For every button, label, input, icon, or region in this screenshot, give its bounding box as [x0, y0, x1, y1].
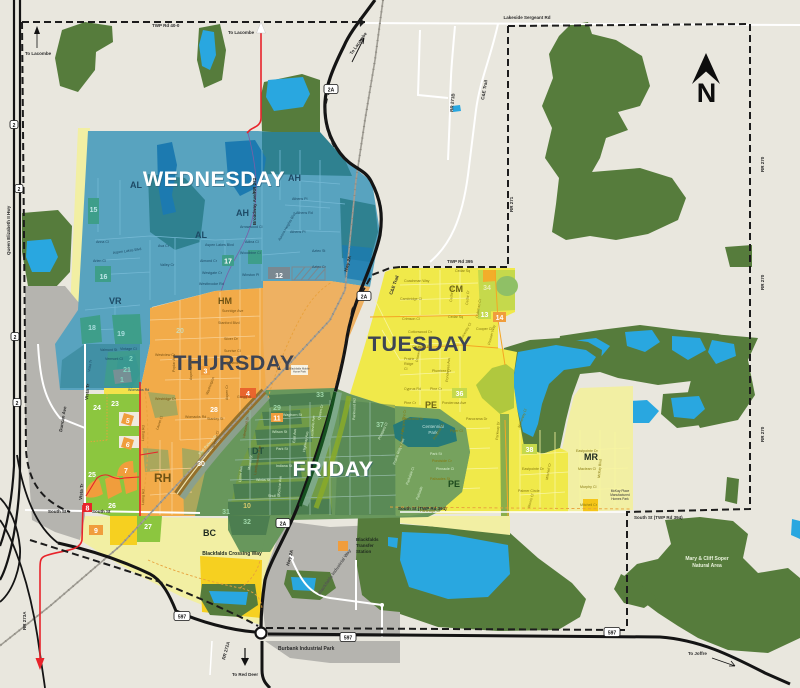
svg-text:Gregg St: Gregg St: [237, 395, 251, 399]
svg-text:RR 271: RR 271: [509, 196, 514, 212]
svg-text:Ridge: Ridge: [404, 362, 413, 366]
svg-text:Stanford Blvd: Stanford Blvd: [218, 321, 240, 325]
svg-text:21: 21: [123, 367, 131, 374]
svg-text:Natural Area: Natural Area: [692, 563, 722, 569]
svg-text:597: 597: [608, 631, 617, 637]
svg-text:Cyprus Rd: Cyprus Rd: [404, 387, 421, 391]
svg-text:2: 2: [129, 356, 133, 363]
svg-text:8: 8: [86, 506, 90, 513]
svg-text:24: 24: [93, 405, 101, 412]
svg-text:HM: HM: [218, 296, 232, 306]
svg-text:Mitchell Cr: Mitchell Cr: [580, 503, 598, 507]
svg-text:Westridge Dr: Westridge Dr: [155, 397, 177, 401]
svg-text:34: 34: [483, 285, 491, 292]
svg-text:Crimson Cl: Crimson Cl: [402, 317, 420, 321]
svg-text:28: 28: [210, 407, 218, 414]
svg-text:AL: AL: [195, 230, 207, 240]
svg-text:AL: AL: [130, 180, 142, 190]
svg-text:Valley Cr: Valley Cr: [160, 263, 175, 267]
svg-text:Adina Cl: Adina Cl: [245, 240, 259, 244]
svg-text:Athens Rd: Athens Rd: [296, 211, 313, 215]
svg-text:Westview Cr: Westview Cr: [226, 361, 247, 365]
svg-text:PE: PE: [425, 400, 437, 410]
svg-text:Pine Cr: Pine Cr: [404, 401, 417, 405]
svg-text:Athens Pl: Athens Pl: [292, 197, 308, 201]
svg-text:Transfer: Transfer: [356, 543, 374, 548]
svg-text:Murphy Cl: Murphy Cl: [580, 485, 597, 489]
svg-text:To Lacombe: To Lacombe: [25, 51, 52, 56]
svg-text:Arlen Cl: Arlen Cl: [93, 259, 106, 263]
svg-text:1: 1: [120, 377, 124, 384]
svg-text:Winston Pl: Winston Pl: [242, 273, 259, 277]
svg-text:597: 597: [344, 636, 353, 642]
svg-text:Waghorn St: Waghorn St: [283, 413, 302, 417]
svg-text:TWP Rd 40-0: TWP Rd 40-0: [152, 23, 180, 28]
svg-text:2: 2: [18, 187, 21, 193]
svg-text:Woodbine Cl: Woodbine Cl: [240, 251, 261, 255]
svg-text:Arrowwood Cl: Arrowwood Cl: [240, 225, 263, 229]
svg-text:South St: South St: [92, 509, 111, 514]
svg-text:Blackfalds: Blackfalds: [356, 537, 379, 542]
svg-text:Almond Cr: Almond Cr: [200, 259, 218, 263]
svg-text:Silver Dr: Silver Dr: [224, 337, 239, 341]
svg-text:RH: RH: [154, 471, 171, 485]
svg-text:Aztec Cr: Aztec Cr: [312, 265, 327, 269]
svg-text:11: 11: [273, 416, 281, 423]
svg-text:Anna Cl: Anna Cl: [96, 240, 109, 244]
svg-text:Womacks Rd: Womacks Rd: [128, 388, 149, 392]
svg-text:16: 16: [100, 274, 108, 281]
svg-text:Winks St: Winks St: [256, 478, 270, 482]
svg-text:RR 270: RR 270: [760, 156, 765, 172]
svg-text:Homes Park: Homes Park: [611, 497, 629, 501]
svg-text:Piper Cl: Piper Cl: [450, 429, 463, 433]
svg-text:Indiana St: Indiana St: [276, 464, 292, 468]
svg-text:25: 25: [88, 472, 96, 479]
svg-text:RR 270: RR 270: [760, 274, 765, 290]
svg-text:Cottonwood Dr: Cottonwood Dr: [408, 330, 433, 334]
svg-text:13: 13: [481, 312, 489, 319]
svg-text:Burbank Industrial Park: Burbank Industrial Park: [278, 646, 335, 652]
svg-text:23: 23: [111, 401, 119, 408]
svg-text:RR 273A: RR 273A: [22, 611, 27, 630]
svg-text:Pine Cr: Pine Cr: [430, 387, 443, 391]
svg-text:Poplar Ave: Poplar Ave: [172, 355, 176, 372]
svg-text:Blackfalds Crossing Way: Blackfalds Crossing Way: [202, 551, 262, 557]
svg-text:TWP Rd 395: TWP Rd 395: [447, 259, 473, 264]
svg-text:Station: Station: [356, 549, 372, 554]
svg-text:33: 33: [316, 392, 324, 399]
svg-text:Prairie: Prairie: [404, 357, 414, 361]
svg-text:Park St: Park St: [430, 452, 442, 456]
svg-text:Palmer Circle: Palmer Circle: [518, 489, 540, 493]
svg-text:Eastpointe Dr: Eastpointe Dr: [522, 467, 545, 471]
svg-text:Queen Elizabeth II Hwy: Queen Elizabeth II Hwy: [6, 205, 11, 255]
svg-text:19: 19: [117, 331, 125, 338]
svg-text:9: 9: [94, 528, 98, 535]
svg-text:Stanley St: Stanley St: [207, 417, 223, 421]
svg-text:VR: VR: [109, 296, 122, 306]
svg-text:Westbrooke Rd: Westbrooke Rd: [199, 282, 224, 286]
svg-text:30: 30: [197, 461, 205, 468]
svg-text:12: 12: [275, 273, 283, 280]
svg-text:Palisades St: Palisades St: [430, 477, 450, 481]
svg-text:Aspen Dr W: Aspen Dr W: [189, 360, 193, 380]
svg-text:2: 2: [13, 123, 16, 129]
svg-text:Valmont St: Valmont St: [100, 348, 117, 352]
svg-text:3: 3: [204, 369, 208, 376]
svg-text:Womacks Rd: Womacks Rd: [185, 415, 206, 419]
svg-text:AH: AH: [236, 208, 249, 218]
svg-text:Leung Rd: Leung Rd: [141, 489, 146, 505]
svg-text:Wilson St: Wilson St: [272, 430, 287, 434]
svg-text:10: 10: [243, 503, 251, 510]
svg-text:Leung Rd: Leung Rd: [141, 425, 146, 441]
svg-text:RR 270: RR 270: [760, 426, 765, 442]
svg-text:Eastpointe Dr: Eastpointe Dr: [576, 449, 599, 453]
svg-text:Cambridge Cl: Cambridge Cl: [400, 297, 422, 301]
svg-text:To Lacombe: To Lacombe: [228, 30, 255, 35]
svg-text:Cedar Sq: Cedar Sq: [448, 315, 463, 319]
svg-text:FRIDAY: FRIDAY: [292, 457, 373, 481]
svg-text:15: 15: [90, 207, 98, 214]
svg-text:Broadway Ave/RR 272: Broadway Ave/RR 272: [252, 177, 257, 225]
svg-text:AH: AH: [288, 173, 301, 183]
svg-text:MR: MR: [584, 452, 598, 462]
svg-text:20: 20: [176, 328, 184, 335]
svg-text:27: 27: [144, 524, 152, 531]
svg-text:Cedar Sq: Cedar Sq: [455, 269, 470, 273]
svg-text:2A: 2A: [361, 295, 368, 301]
svg-text:29: 29: [273, 405, 281, 412]
svg-text:Parkwood Rd: Parkwood Rd: [352, 398, 357, 420]
svg-text:7: 7: [124, 468, 128, 475]
svg-text:Aztec St: Aztec St: [312, 249, 325, 253]
svg-text:BC: BC: [203, 528, 216, 538]
svg-text:Westgate Cr: Westgate Cr: [202, 271, 223, 275]
svg-text:2: 2: [14, 335, 17, 341]
svg-text:2A: 2A: [280, 522, 287, 528]
svg-text:36: 36: [456, 391, 464, 398]
svg-text:Sunridge Ave: Sunridge Ave: [222, 309, 243, 313]
svg-text:Coachman Way: Coachman Way: [404, 279, 430, 283]
svg-text:Sunrise Cl: Sunrise Cl: [224, 349, 241, 353]
svg-text:31: 31: [222, 509, 230, 516]
svg-text:N: N: [697, 78, 716, 108]
svg-text:Mary & Cliff Soper: Mary & Cliff Soper: [685, 556, 728, 562]
svg-text:Vintage Cl: Vintage Cl: [120, 347, 137, 351]
svg-text:To Joffre: To Joffre: [688, 651, 707, 656]
svg-text:32: 32: [243, 519, 251, 526]
svg-text:38: 38: [526, 447, 534, 454]
svg-text:2: 2: [16, 401, 19, 407]
svg-text:South St (TWP Rd 394): South St (TWP Rd 394): [634, 515, 683, 520]
svg-text:Pinnacle Cl: Pinnacle Cl: [436, 467, 454, 471]
svg-text:14: 14: [496, 315, 504, 322]
svg-text:Ponderosa Ave: Ponderosa Ave: [442, 401, 466, 405]
svg-text:Parkridge Cr: Parkridge Cr: [420, 509, 441, 513]
svg-text:To Red Deer: To Red Deer: [232, 672, 258, 677]
svg-text:17: 17: [224, 259, 232, 266]
svg-text:Home Park: Home Park: [293, 370, 307, 374]
svg-text:WEDNESDAY: WEDNESDAY: [143, 167, 285, 191]
svg-text:Cl: Cl: [404, 367, 408, 371]
svg-text:South St: South St: [48, 509, 67, 514]
svg-text:Maclean Cl: Maclean Cl: [578, 467, 596, 471]
svg-text:Pondside Cr: Pondside Cr: [432, 459, 453, 463]
svg-text:Vermont Cl: Vermont Cl: [105, 357, 123, 361]
svg-text:Athens Pl: Athens Pl: [290, 230, 306, 234]
svg-text:Park St: Park St: [276, 447, 288, 451]
svg-text:Aspen Cr: Aspen Cr: [225, 384, 229, 400]
svg-text:Panorama Dr: Panorama Dr: [466, 417, 488, 421]
svg-text:597: 597: [178, 615, 187, 621]
svg-text:18: 18: [88, 325, 96, 332]
svg-text:Ava Cr: Ava Cr: [158, 244, 170, 248]
svg-text:Aspen Lakes Blvd: Aspen Lakes Blvd: [205, 243, 234, 247]
svg-text:2A: 2A: [328, 88, 335, 94]
svg-text:Lakeside Sergeant Rd: Lakeside Sergeant Rd: [503, 15, 550, 20]
